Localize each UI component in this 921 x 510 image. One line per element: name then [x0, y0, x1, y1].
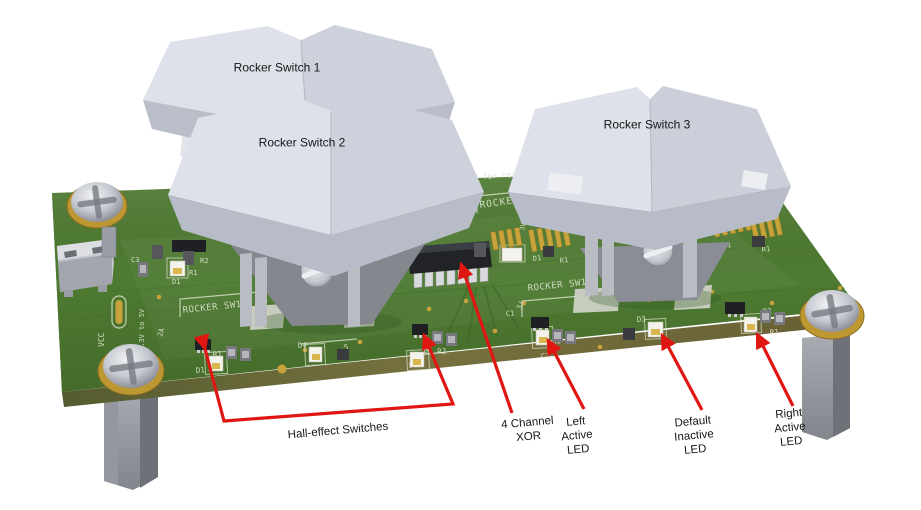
screw-back-left: [67, 182, 127, 228]
pcb-render-figure: C approved for resa ROCKER S ROCKER SW1 …: [0, 0, 921, 510]
svg-text:D1: D1: [172, 278, 180, 286]
svg-text:R2: R2: [200, 257, 208, 265]
svg-text:D4: D4: [298, 340, 308, 350]
silk-vcc: VCC: [97, 332, 106, 347]
silk-voltage-range: 3.3V to 5V: [138, 308, 146, 351]
svg-text:R1: R1: [189, 269, 197, 277]
svg-text:R1 R2: R1 R2: [424, 346, 447, 357]
pcb-scene: C approved for resa ROCKER S ROCKER SW1 …: [0, 0, 921, 510]
default-inactive-led-arrow: [662, 335, 702, 410]
svg-text:C1: C1: [506, 309, 515, 318]
svg-text:D1: D1: [532, 254, 541, 263]
svg-text:C1: C1: [541, 351, 551, 361]
svg-text:D1: D1: [196, 365, 206, 375]
svg-text:R1: R1: [559, 256, 568, 265]
standoff-leg-right: [802, 333, 850, 440]
svg-text:R1: R1: [770, 327, 780, 337]
right-active-led-arrow: [757, 334, 793, 406]
